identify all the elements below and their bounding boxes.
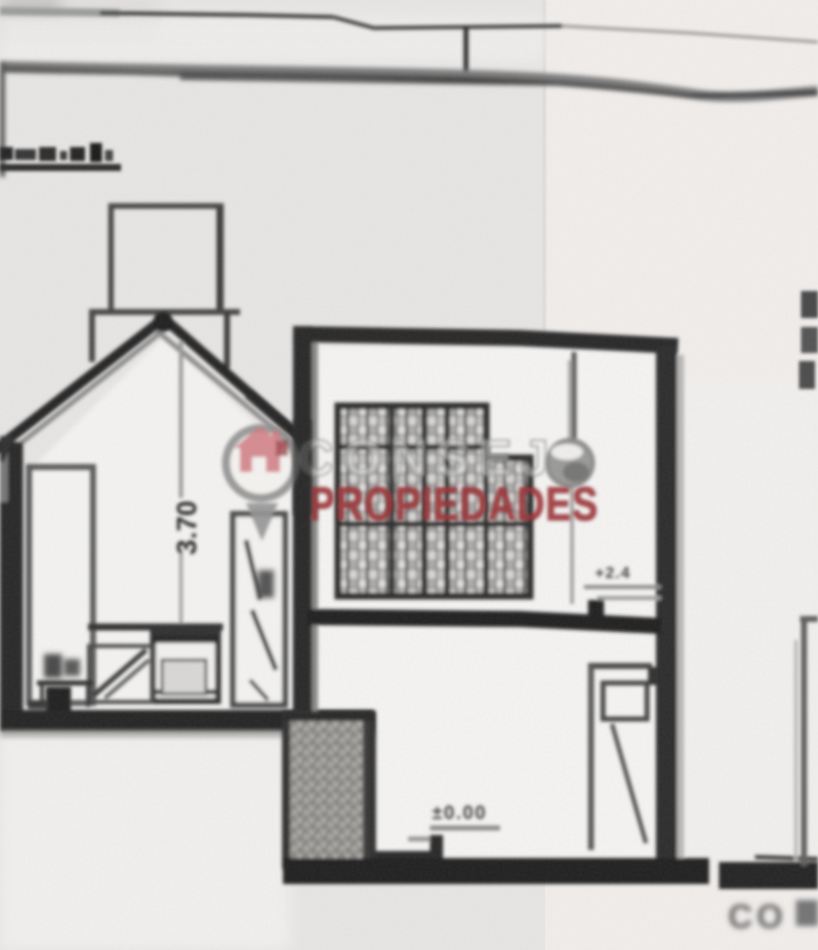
svg-text:+2.4: +2.4 bbox=[595, 565, 631, 582]
svg-text:CO: CO bbox=[728, 898, 787, 936]
svg-text:±0.00: ±0.00 bbox=[432, 803, 487, 824]
svg-text:PROPIEDADES: PROPIEDADES bbox=[309, 478, 599, 530]
svg-text:3.70: 3.70 bbox=[171, 501, 202, 556]
